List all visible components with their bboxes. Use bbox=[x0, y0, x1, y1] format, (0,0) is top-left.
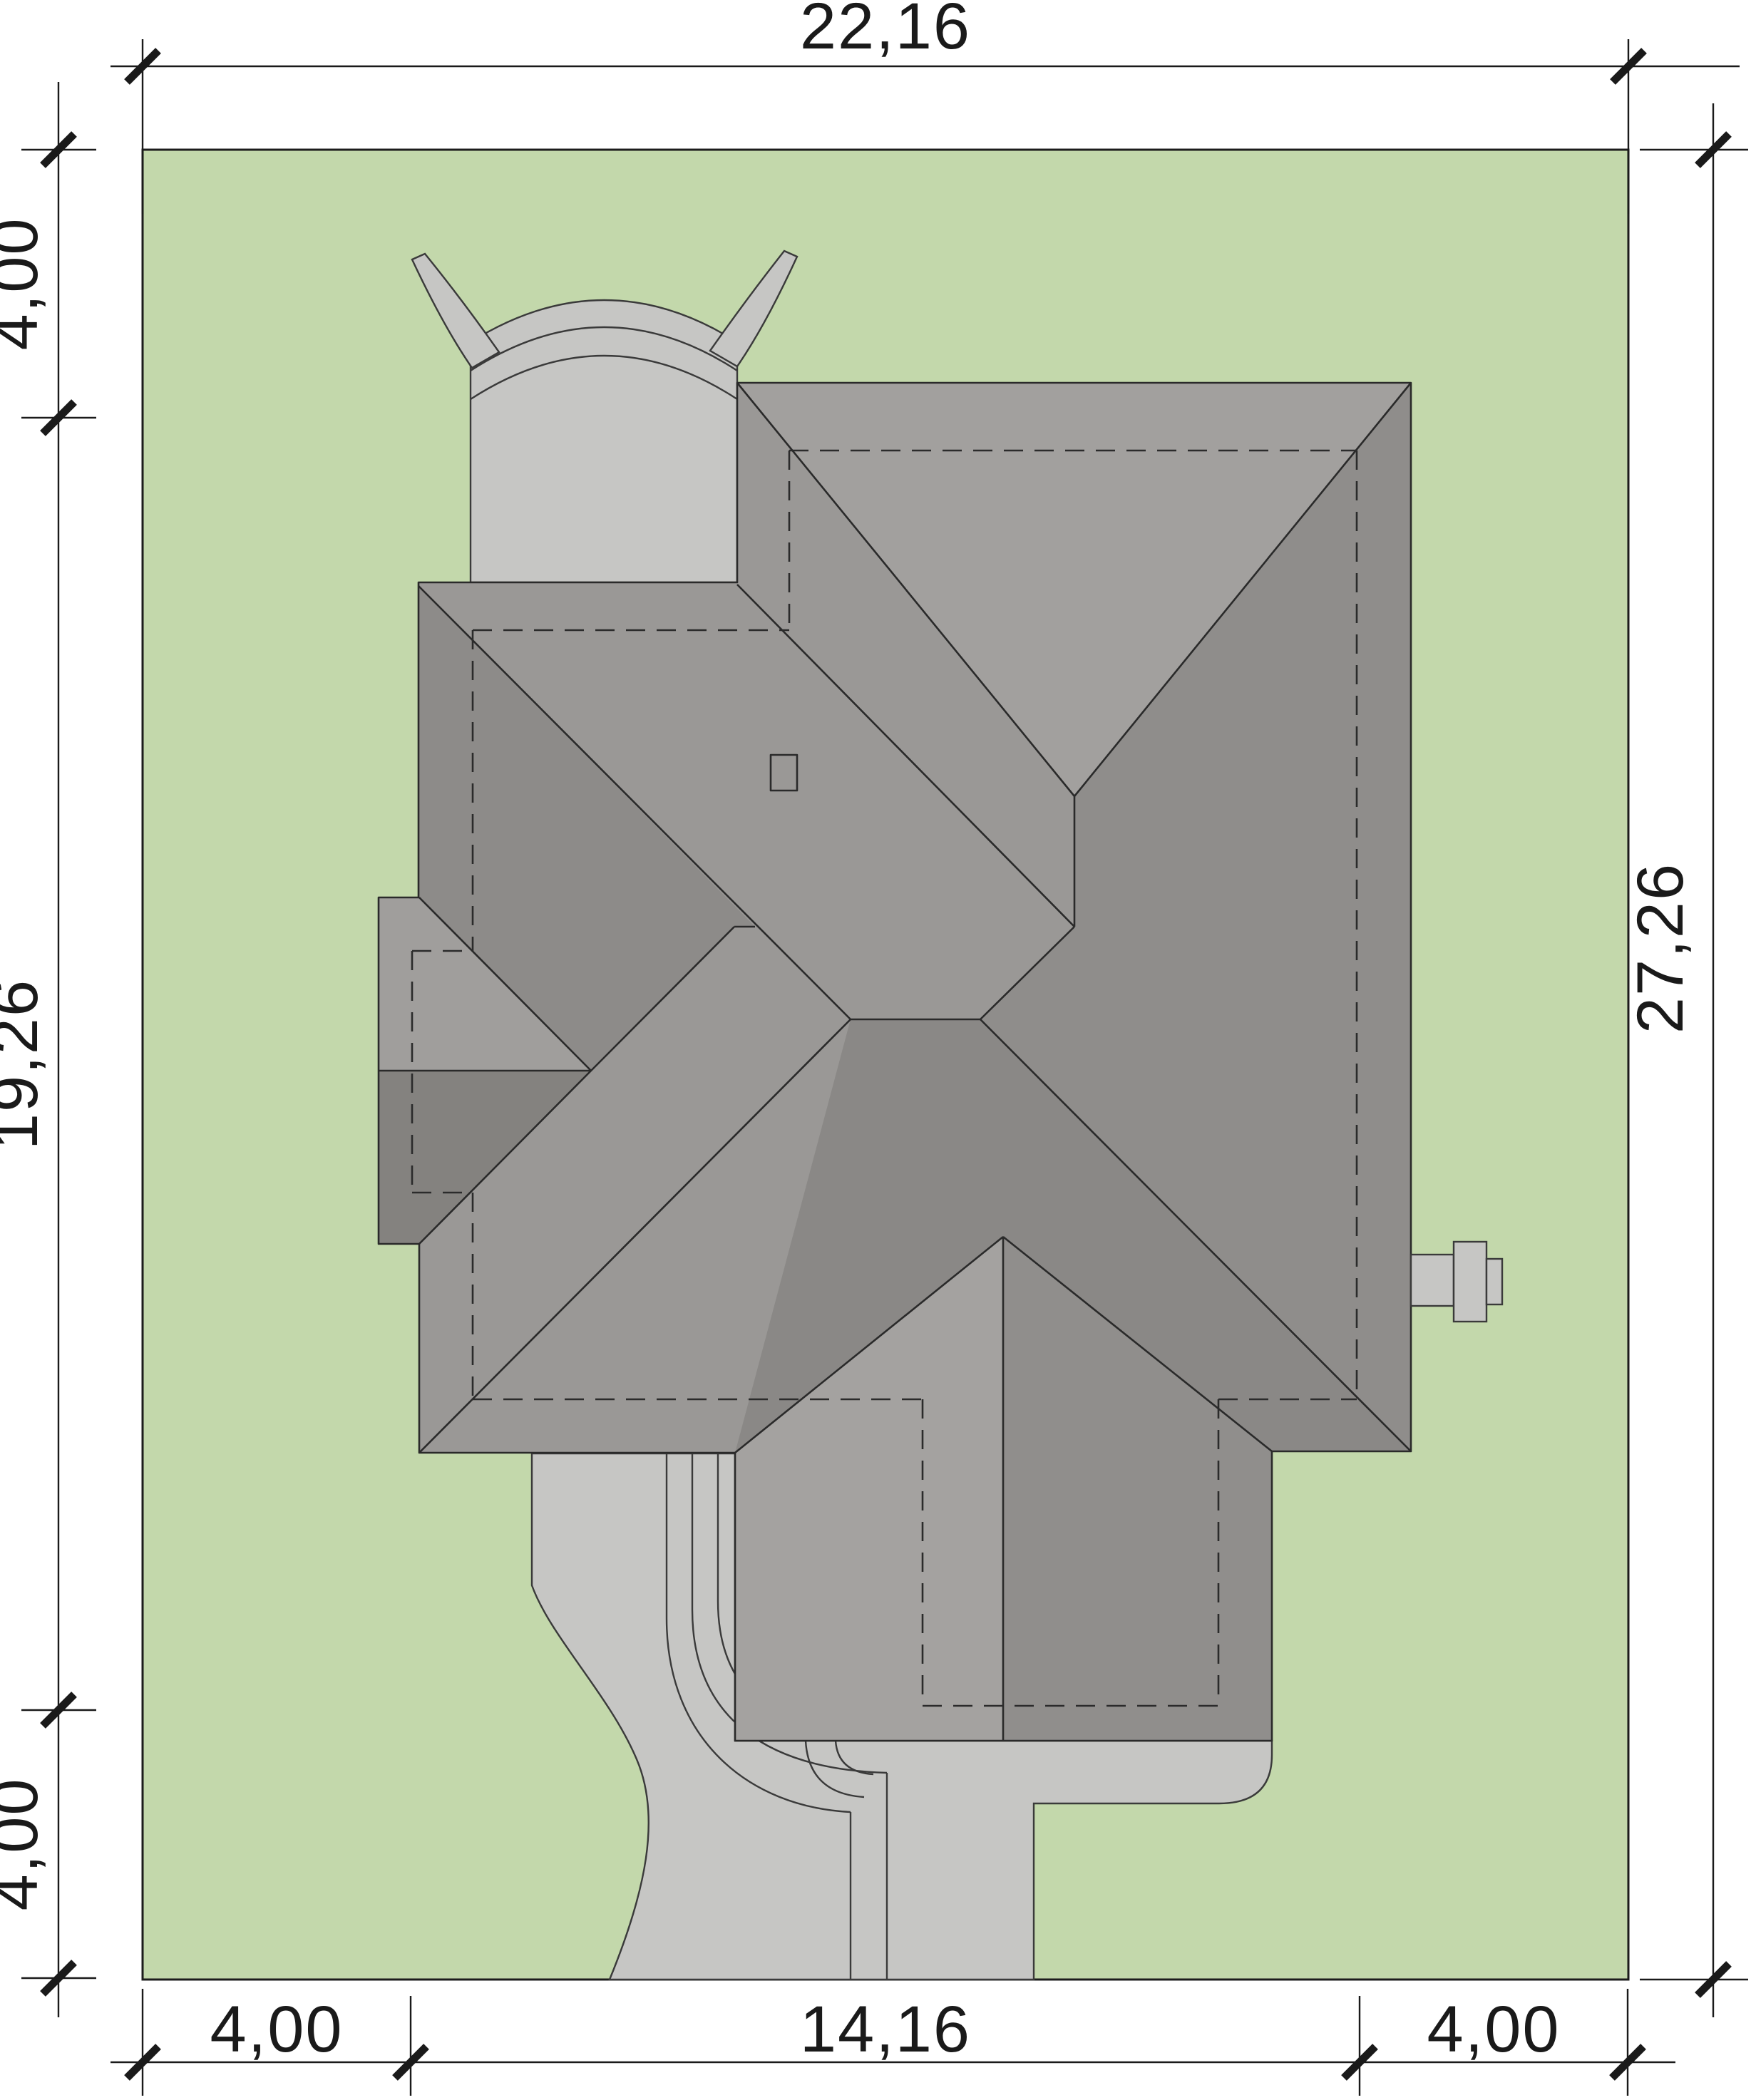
chimney-base bbox=[1411, 1255, 1454, 1306]
site-plan-page: 22,16 4,00 19,26 4,00 27,26 4,00 14,16 4… bbox=[0, 0, 1751, 2100]
chimney-cap bbox=[1486, 1259, 1502, 1304]
dim-label-bottom-right: 4,00 bbox=[1427, 1993, 1560, 2066]
dim-label-left-bottom: 4,00 bbox=[0, 1777, 51, 1910]
dim-label-left-middle: 19,26 bbox=[0, 979, 51, 1150]
dim-label-left-top: 4,00 bbox=[0, 217, 51, 350]
dim-label-bottom-left: 4,00 bbox=[210, 1993, 343, 2066]
chimney-stack bbox=[1454, 1242, 1486, 1322]
dim-label-top: 22,16 bbox=[800, 0, 971, 63]
driveway-top-surface bbox=[471, 300, 737, 582]
dim-label-right: 27,26 bbox=[1624, 863, 1697, 1034]
site-plan-drawing: 22,16 4,00 19,26 4,00 27,26 4,00 14,16 4… bbox=[0, 0, 1751, 2100]
dim-label-bottom-center: 14,16 bbox=[800, 1993, 971, 2066]
